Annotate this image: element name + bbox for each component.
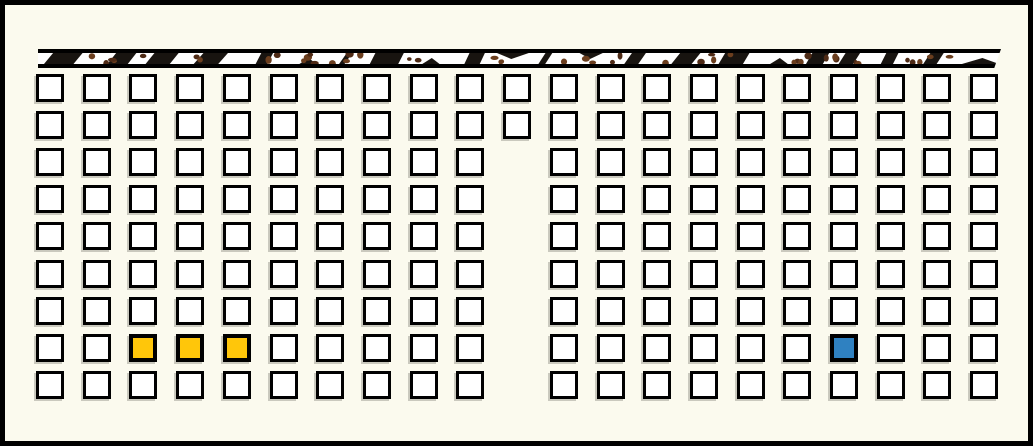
grid-cell[interactable] [410, 74, 438, 102]
blue-seat[interactable] [830, 334, 858, 362]
grid-cell[interactable] [410, 334, 438, 362]
grid-cell[interactable] [830, 297, 858, 325]
grid-cell[interactable] [410, 148, 438, 176]
grid-cell[interactable] [690, 222, 718, 250]
grid-cell[interactable] [176, 185, 204, 213]
grid-cell[interactable] [363, 185, 391, 213]
yellow-seat-3[interactable] [223, 334, 251, 362]
grid-cell[interactable] [363, 297, 391, 325]
grid-cell[interactable] [410, 260, 438, 288]
grid-cell[interactable] [877, 371, 905, 399]
grid-cell[interactable] [456, 334, 484, 362]
grid-cell[interactable] [36, 334, 64, 362]
grid-cell[interactable] [270, 111, 298, 139]
grid-cell[interactable] [830, 222, 858, 250]
grid-cell[interactable] [550, 111, 578, 139]
grid-cell[interactable] [36, 371, 64, 399]
grid-cell[interactable] [316, 371, 344, 399]
grid-cell[interactable] [923, 334, 951, 362]
grid-cell[interactable] [270, 148, 298, 176]
grid-cell[interactable] [597, 260, 625, 288]
grid-cell[interactable] [36, 148, 64, 176]
grid-cell[interactable] [690, 74, 718, 102]
grid-cell[interactable] [223, 222, 251, 250]
grid-cell[interactable] [970, 371, 998, 399]
grid-cell[interactable] [783, 297, 811, 325]
seat-grid [5, 5, 1028, 441]
grid-cell[interactable] [223, 371, 251, 399]
grid-cell[interactable] [877, 297, 905, 325]
grid-cell[interactable] [643, 185, 671, 213]
grid-cell[interactable] [503, 111, 531, 139]
grid-cell[interactable] [363, 111, 391, 139]
grid-cell[interactable] [176, 111, 204, 139]
grid-cell[interactable] [410, 185, 438, 213]
grid-cell[interactable] [316, 297, 344, 325]
grid-cell[interactable] [83, 185, 111, 213]
grid-cell[interactable] [690, 111, 718, 139]
grid-cell[interactable] [783, 334, 811, 362]
grid-cell[interactable] [83, 222, 111, 250]
yellow-seat-1[interactable] [129, 334, 157, 362]
grid-cell[interactable] [363, 371, 391, 399]
grid-cell[interactable] [83, 111, 111, 139]
grid-cell[interactable] [36, 222, 64, 250]
grid-cell[interactable] [36, 111, 64, 139]
grid-cell[interactable] [316, 260, 344, 288]
grid-cell[interactable] [830, 111, 858, 139]
grid-cell[interactable] [783, 260, 811, 288]
grid-cell[interactable] [970, 185, 998, 213]
grid-cell[interactable] [456, 260, 484, 288]
grid-cell[interactable] [597, 297, 625, 325]
grid-cell[interactable] [597, 185, 625, 213]
grid-cell[interactable] [270, 222, 298, 250]
grid-cell[interactable] [643, 148, 671, 176]
grid-cell[interactable] [176, 222, 204, 250]
grid-cell[interactable] [316, 185, 344, 213]
grid-cell[interactable] [129, 222, 157, 250]
grid-cell[interactable] [176, 74, 204, 102]
grid-cell[interactable] [737, 222, 765, 250]
grid-cell[interactable] [410, 222, 438, 250]
grid-cell[interactable] [36, 185, 64, 213]
grid-cell[interactable] [270, 334, 298, 362]
diagram-canvas [0, 0, 1033, 446]
grid-cell[interactable] [877, 148, 905, 176]
grid-cell[interactable] [270, 260, 298, 288]
grid-cell[interactable] [550, 297, 578, 325]
grid-cell[interactable] [83, 74, 111, 102]
grid-cell[interactable] [36, 297, 64, 325]
grid-cell[interactable] [923, 297, 951, 325]
grid-cell[interactable] [550, 334, 578, 362]
grid-cell[interactable] [363, 74, 391, 102]
grid-cell[interactable] [270, 371, 298, 399]
grid-cell[interactable] [970, 222, 998, 250]
grid-cell[interactable] [970, 148, 998, 176]
grid-cell[interactable] [597, 334, 625, 362]
grid-cell[interactable] [877, 222, 905, 250]
grid-cell[interactable] [36, 260, 64, 288]
grid-cell[interactable] [923, 74, 951, 102]
grid-cell[interactable] [737, 334, 765, 362]
grid-cell[interactable] [316, 148, 344, 176]
grid-cell[interactable] [363, 148, 391, 176]
grid-cell[interactable] [643, 260, 671, 288]
grid-cell[interactable] [643, 222, 671, 250]
grid-cell[interactable] [129, 297, 157, 325]
grid-cell[interactable] [83, 334, 111, 362]
grid-cell[interactable] [83, 371, 111, 399]
grid-cell[interactable] [923, 185, 951, 213]
grid-cell[interactable] [597, 74, 625, 102]
grid-cell[interactable] [690, 185, 718, 213]
grid-cell[interactable] [877, 74, 905, 102]
grid-cell[interactable] [83, 297, 111, 325]
grid-cell[interactable] [550, 185, 578, 213]
grid-cell[interactable] [970, 111, 998, 139]
grid-cell[interactable] [270, 297, 298, 325]
grid-cell[interactable] [456, 148, 484, 176]
grid-cell[interactable] [830, 371, 858, 399]
grid-cell[interactable] [643, 74, 671, 102]
grid-cell[interactable] [129, 74, 157, 102]
grid-cell[interactable] [737, 74, 765, 102]
grid-cell[interactable] [270, 74, 298, 102]
grid-cell[interactable] [923, 260, 951, 288]
grid-cell[interactable] [456, 74, 484, 102]
grid-cell[interactable] [129, 371, 157, 399]
grid-cell[interactable] [737, 111, 765, 139]
grid-cell[interactable] [783, 74, 811, 102]
grid-cell[interactable] [456, 185, 484, 213]
grid-cell[interactable] [877, 185, 905, 213]
grid-cell[interactable] [129, 185, 157, 213]
grid-cell[interactable] [129, 111, 157, 139]
grid-cell[interactable] [970, 74, 998, 102]
grid-cell[interactable] [783, 111, 811, 139]
yellow-seat-2[interactable] [176, 334, 204, 362]
grid-cell[interactable] [970, 260, 998, 288]
grid-cell[interactable] [223, 260, 251, 288]
grid-cell[interactable] [923, 111, 951, 139]
grid-cell[interactable] [456, 111, 484, 139]
grid-cell[interactable] [176, 148, 204, 176]
grid-cell[interactable] [877, 111, 905, 139]
grid-cell[interactable] [643, 334, 671, 362]
grid-cell[interactable] [737, 185, 765, 213]
grid-cell[interactable] [783, 222, 811, 250]
grid-cell[interactable] [690, 297, 718, 325]
grid-cell[interactable] [316, 111, 344, 139]
grid-cell[interactable] [597, 371, 625, 399]
grid-cell[interactable] [363, 222, 391, 250]
grid-cell[interactable] [550, 74, 578, 102]
grid-cell[interactable] [316, 74, 344, 102]
grid-cell[interactable] [410, 297, 438, 325]
grid-cell[interactable] [223, 297, 251, 325]
grid-cell[interactable] [456, 222, 484, 250]
grid-cell[interactable] [176, 260, 204, 288]
grid-cell[interactable] [363, 334, 391, 362]
grid-cell[interactable] [550, 222, 578, 250]
grid-cell[interactable] [223, 185, 251, 213]
grid-cell[interactable] [83, 148, 111, 176]
grid-cell[interactable] [316, 222, 344, 250]
grid-cell[interactable] [503, 74, 531, 102]
grid-cell[interactable] [83, 260, 111, 288]
grid-cell[interactable] [550, 371, 578, 399]
grid-cell[interactable] [830, 74, 858, 102]
grid-cell[interactable] [783, 148, 811, 176]
grid-cell[interactable] [737, 371, 765, 399]
grid-cell[interactable] [410, 371, 438, 399]
grid-cell[interactable] [550, 260, 578, 288]
grid-cell[interactable] [316, 334, 344, 362]
grid-cell[interactable] [643, 371, 671, 399]
grid-cell[interactable] [223, 111, 251, 139]
grid-cell[interactable] [737, 260, 765, 288]
grid-cell[interactable] [877, 260, 905, 288]
grid-cell[interactable] [970, 297, 998, 325]
grid-cell[interactable] [176, 371, 204, 399]
grid-cell[interactable] [597, 111, 625, 139]
grid-cell[interactable] [550, 148, 578, 176]
grid-cell[interactable] [923, 148, 951, 176]
grid-cell[interactable] [737, 297, 765, 325]
grid-cell[interactable] [129, 260, 157, 288]
grid-cell[interactable] [690, 371, 718, 399]
grid-cell[interactable] [690, 148, 718, 176]
grid-cell[interactable] [270, 185, 298, 213]
grid-cell[interactable] [456, 297, 484, 325]
grid-cell[interactable] [690, 260, 718, 288]
grid-cell[interactable] [690, 334, 718, 362]
grid-cell[interactable] [923, 371, 951, 399]
grid-cell[interactable] [643, 111, 671, 139]
grid-cell[interactable] [783, 185, 811, 213]
grid-cell[interactable] [737, 148, 765, 176]
grid-cell[interactable] [830, 148, 858, 176]
grid-cell[interactable] [597, 148, 625, 176]
grid-cell[interactable] [363, 260, 391, 288]
grid-cell[interactable] [223, 148, 251, 176]
grid-cell[interactable] [36, 74, 64, 102]
grid-cell[interactable] [223, 74, 251, 102]
grid-cell[interactable] [970, 334, 998, 362]
grid-cell[interactable] [129, 148, 157, 176]
grid-cell[interactable] [597, 222, 625, 250]
grid-cell[interactable] [176, 297, 204, 325]
grid-cell[interactable] [456, 371, 484, 399]
grid-cell[interactable] [410, 111, 438, 139]
grid-cell[interactable] [830, 260, 858, 288]
grid-cell[interactable] [923, 222, 951, 250]
grid-cell[interactable] [877, 334, 905, 362]
grid-cell[interactable] [643, 297, 671, 325]
grid-cell[interactable] [783, 371, 811, 399]
grid-cell[interactable] [830, 185, 858, 213]
